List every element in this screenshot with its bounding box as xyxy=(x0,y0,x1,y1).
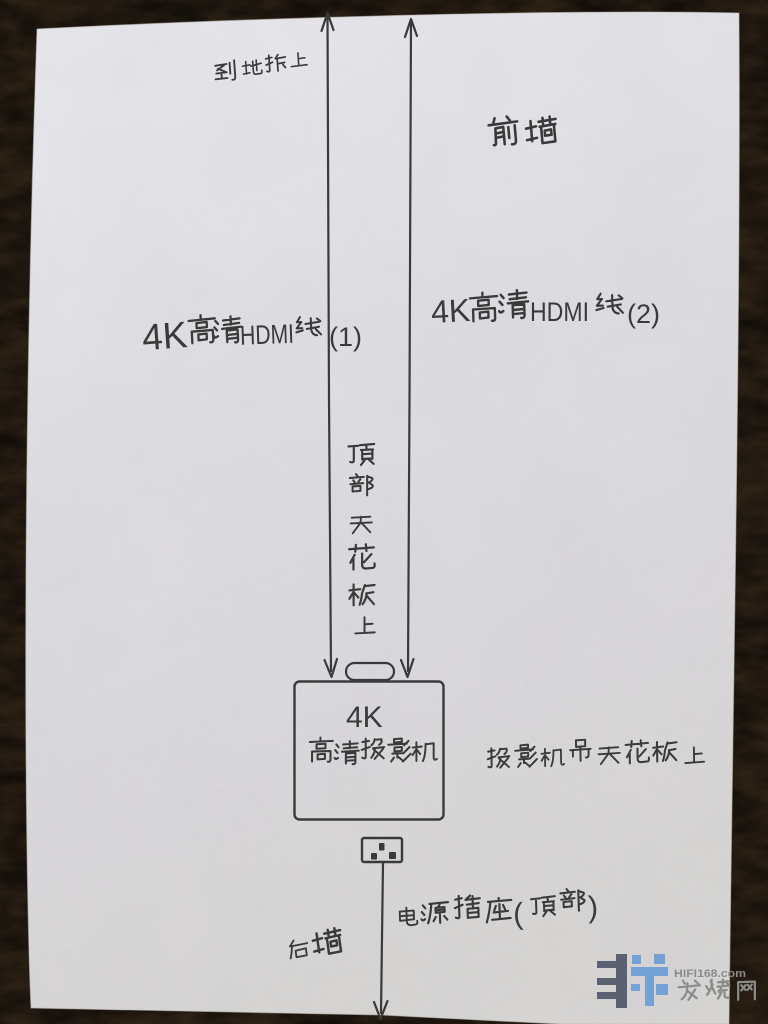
svg-text:HIFI168.com: HIFI168.com xyxy=(674,968,746,980)
svg-text:): ) xyxy=(587,891,598,924)
svg-text:HDMI: HDMI xyxy=(239,319,294,351)
svg-text:(2): (2) xyxy=(627,299,660,329)
svg-text:(1): (1) xyxy=(329,322,362,352)
svg-text:4K: 4K xyxy=(141,314,189,358)
svg-text:HDMI: HDMI xyxy=(530,297,589,327)
svg-text:4K: 4K xyxy=(346,701,383,734)
svg-text:(: ( xyxy=(513,898,524,931)
svg-text:4K: 4K xyxy=(430,292,471,330)
